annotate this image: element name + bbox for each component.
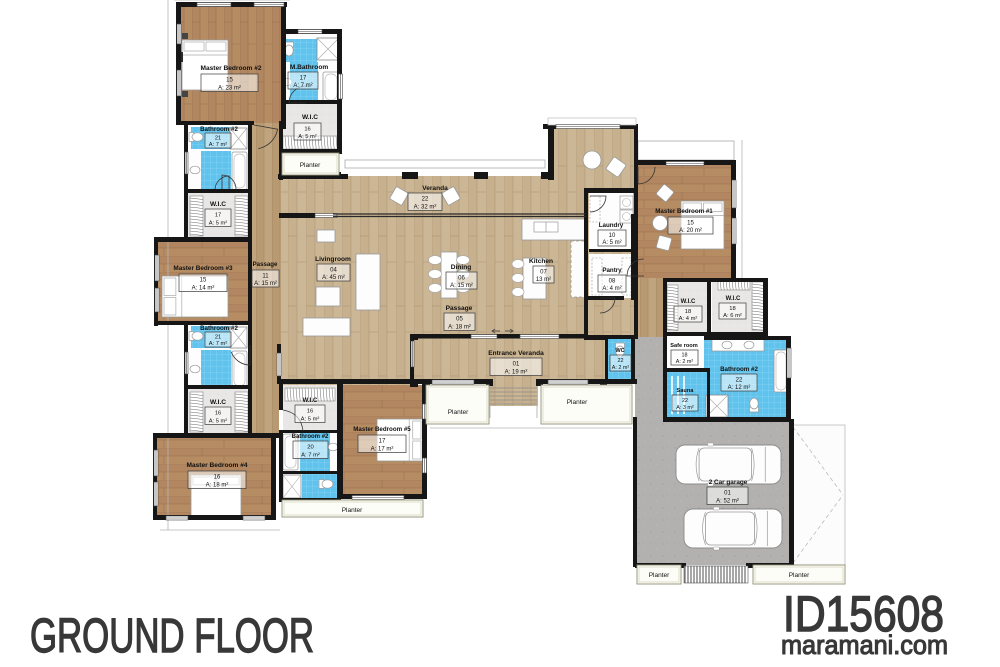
svg-text:11: 11 [262, 273, 269, 279]
svg-text:GROUND FLOOR: GROUND FLOOR [30, 610, 314, 663]
svg-text:Planter: Planter [300, 162, 321, 169]
svg-text:A: 5 m²: A: 5 m² [298, 134, 317, 140]
svg-text:Bathroom #2: Bathroom #2 [720, 366, 758, 373]
svg-text:06: 06 [458, 275, 465, 281]
svg-text:Planter: Planter [448, 409, 469, 416]
svg-text:M.Bathroom: M.Bathroom [290, 64, 329, 71]
svg-text:01: 01 [513, 362, 520, 368]
svg-text:W.I.C: W.I.C [302, 114, 318, 121]
svg-text:A: 4 m²: A: 4 m² [602, 286, 621, 292]
svg-text:16: 16 [307, 409, 313, 415]
svg-text:A: 2 m²: A: 2 m² [676, 359, 694, 365]
svg-text:15: 15 [200, 278, 207, 284]
svg-text:04: 04 [330, 267, 337, 273]
svg-text:22: 22 [682, 398, 688, 404]
svg-text:W.I.C: W.I.C [210, 399, 226, 406]
svg-text:A: 23 m²: A: 23 m² [218, 85, 241, 91]
svg-text:Safe room: Safe room [670, 343, 698, 349]
svg-text:A: 4 m²: A: 4 m² [679, 316, 698, 322]
svg-text:W.I.C: W.I.C [681, 299, 696, 305]
svg-text:A: 18 m²: A: 18 m² [206, 482, 229, 488]
svg-text:Passage: Passage [253, 261, 278, 268]
svg-text:16: 16 [214, 475, 221, 481]
svg-text:Entrance Veranda: Entrance Veranda [488, 350, 544, 357]
svg-text:A: 15 m²: A: 15 m² [254, 281, 277, 287]
svg-text:13 m²: 13 m² [536, 277, 551, 283]
svg-text:Bathroom #2: Bathroom #2 [200, 126, 238, 133]
svg-text:A: 45 m²: A: 45 m² [322, 275, 345, 281]
svg-text:15: 15 [226, 78, 233, 84]
svg-text:18: 18 [681, 352, 687, 358]
svg-text:22: 22 [736, 377, 743, 383]
svg-text:A: 5 m²: A: 5 m² [602, 240, 621, 246]
svg-text:A: 17 m²: A: 17 m² [371, 446, 394, 452]
svg-text:16: 16 [304, 126, 310, 132]
svg-text:A: 52 m²: A: 52 m² [716, 498, 739, 504]
svg-text:Planter: Planter [567, 399, 588, 406]
svg-text:A: 14 m²: A: 14 m² [192, 285, 215, 291]
svg-text:A: 12 m²: A: 12 m² [728, 385, 751, 391]
svg-text:A: 7 m²: A: 7 m² [301, 452, 320, 458]
svg-text:Master Bedroom #2: Master Bedroom #2 [200, 65, 261, 72]
svg-text:Veranda: Veranda [422, 185, 448, 192]
svg-text:W.I.C: W.I.C [210, 201, 226, 208]
svg-text:A: 7 m²: A: 7 m² [293, 83, 312, 89]
svg-text:Kitchen: Kitchen [529, 258, 553, 265]
svg-text:W.I.C: W.I.C [303, 398, 318, 404]
svg-text:A: 5 m²: A: 5 m² [301, 416, 320, 422]
svg-text:Pantry: Pantry [602, 267, 622, 274]
svg-text:18: 18 [685, 309, 691, 315]
svg-text:A: 18 m²: A: 18 m² [448, 324, 471, 330]
svg-text:Passage: Passage [446, 305, 473, 312]
svg-text:08: 08 [609, 278, 616, 284]
svg-text:Planter: Planter [342, 507, 363, 514]
svg-text:18: 18 [729, 306, 735, 312]
svg-text:Dining: Dining [451, 264, 471, 271]
svg-text:Bathroom #2: Bathroom #2 [200, 325, 238, 332]
svg-text:Planter: Planter [789, 572, 810, 579]
svg-text:22: 22 [617, 358, 623, 364]
svg-text:Master Bedroom #5: Master Bedroom #5 [353, 426, 411, 433]
svg-text:Sauna: Sauna [677, 388, 695, 394]
svg-text:15: 15 [687, 220, 694, 226]
svg-text:A: 3 m²: A: 3 m² [676, 405, 694, 411]
svg-text:17: 17 [300, 75, 307, 81]
svg-text:WC: WC [615, 348, 624, 354]
svg-text:A: 7 m²: A: 7 m² [209, 341, 228, 347]
svg-text:Master Bedroom #4: Master Bedroom #4 [186, 462, 247, 469]
svg-text:A: 7 m²: A: 7 m² [209, 142, 228, 148]
svg-text:A: 19 m²: A: 19 m² [505, 369, 528, 375]
svg-text:17: 17 [215, 213, 221, 219]
svg-text:21: 21 [215, 334, 221, 340]
svg-text:Laundry: Laundry [599, 222, 624, 229]
svg-text:A: 5 m²: A: 5 m² [209, 220, 228, 226]
svg-text:A: 20 m²: A: 20 m² [679, 228, 702, 234]
svg-text:W.I.C: W.I.C [726, 296, 741, 302]
svg-text:16: 16 [215, 411, 221, 417]
svg-text:A: 6 m²: A: 6 m² [723, 313, 742, 319]
svg-text:07: 07 [540, 269, 547, 275]
svg-text:Master Bedroom #3: Master Bedroom #3 [173, 265, 233, 272]
svg-text:maramani.com: maramani.com [781, 630, 948, 660]
svg-text:Bathroom #2: Bathroom #2 [292, 434, 329, 440]
svg-text:21: 21 [215, 135, 221, 141]
svg-text:05: 05 [456, 317, 463, 323]
svg-text:A: 5 m²: A: 5 m² [209, 418, 228, 424]
svg-text:Livingroom: Livingroom [315, 256, 351, 263]
svg-text:2 Car garage: 2 Car garage [709, 479, 748, 486]
svg-text:17: 17 [379, 439, 386, 445]
svg-text:22: 22 [422, 197, 429, 203]
svg-text:Master Bedroom #1: Master Bedroom #1 [655, 208, 713, 215]
svg-text:20: 20 [307, 445, 313, 451]
svg-text:01: 01 [724, 491, 731, 497]
svg-text:10: 10 [609, 233, 616, 239]
svg-text:A: 15 m²: A: 15 m² [450, 283, 473, 289]
svg-text:A: 2 m²: A: 2 m² [612, 365, 630, 371]
svg-text:Planter: Planter [649, 572, 670, 579]
svg-text:A: 32 m²: A: 32 m² [414, 204, 437, 210]
